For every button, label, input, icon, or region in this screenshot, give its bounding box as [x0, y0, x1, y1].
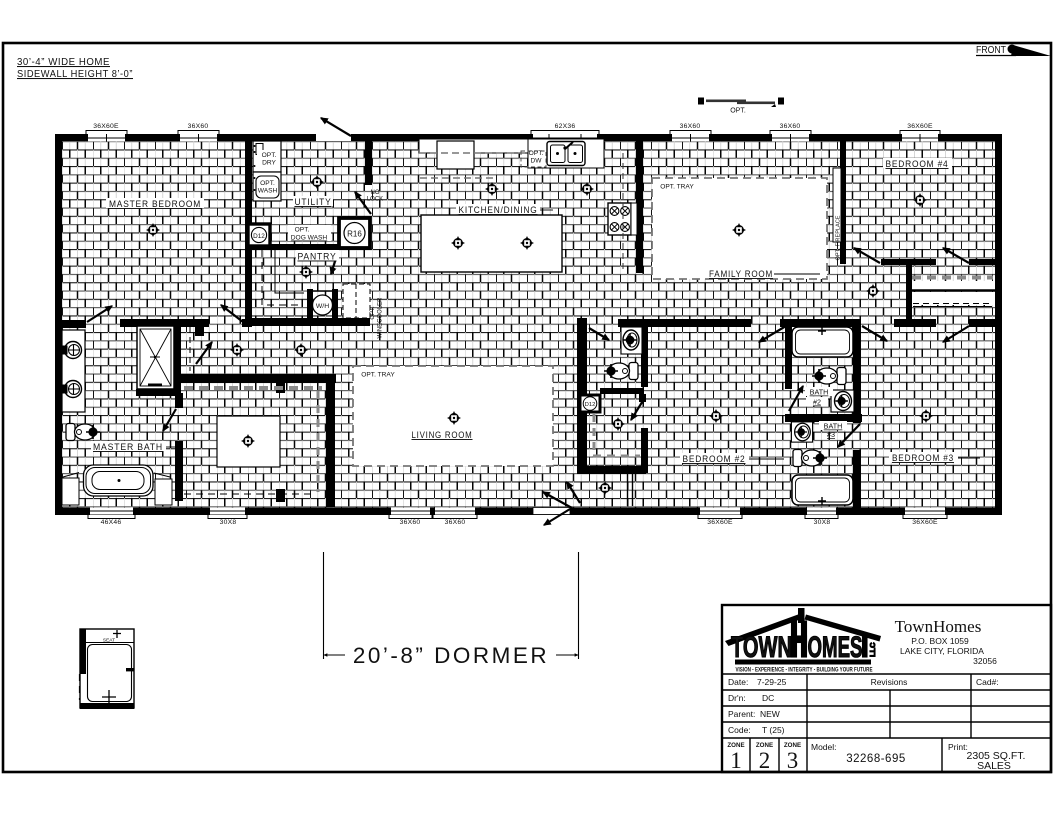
- svg-text:OPT. TRAY: OPT. TRAY: [361, 372, 395, 379]
- svg-text:SEAT: SEAT: [103, 638, 115, 644]
- svg-text:#2: #2: [813, 398, 821, 407]
- svg-text:2: 2: [759, 748, 771, 773]
- svg-text:D12: D12: [253, 233, 265, 240]
- svg-text:30X8: 30X8: [814, 519, 831, 526]
- svg-text:3: 3: [787, 748, 799, 773]
- svg-text:#3: #3: [827, 430, 835, 439]
- svg-text:1: 1: [730, 748, 742, 773]
- svg-text:R16: R16: [347, 230, 362, 239]
- svg-text:DRY: DRY: [262, 160, 276, 167]
- svg-text:D12: D12: [585, 402, 596, 408]
- svg-text:FRONT: FRONT: [976, 45, 1006, 56]
- svg-text:SALES: SALES: [977, 760, 1011, 772]
- svg-text:OPT.: OPT.: [370, 306, 376, 320]
- svg-text:OPT.: OPT.: [262, 152, 277, 159]
- svg-text:LAKE CITY, FLORIDA: LAKE CITY, FLORIDA: [900, 646, 984, 656]
- svg-text:BATH: BATH: [810, 388, 829, 397]
- svg-text:OMES: OMES: [808, 631, 863, 664]
- svg-text:62X36: 62X36: [555, 123, 576, 130]
- svg-text:MASTER BEDROOM: MASTER BEDROOM: [109, 199, 201, 210]
- svg-text:WINECOOLER: WINECOOLER: [378, 297, 384, 339]
- svg-text:W/H: W/H: [316, 303, 329, 310]
- svg-text:Code:: Code:: [728, 725, 751, 735]
- svg-text:36X60: 36X60: [680, 123, 701, 130]
- svg-text:WASH: WASH: [258, 188, 278, 195]
- svg-text:OPT. FIREPLACE: OPT. FIREPLACE: [836, 215, 842, 260]
- svg-text:36X60E: 36X60E: [707, 519, 733, 526]
- svg-text:20’-8” DORMER: 20’-8” DORMER: [353, 643, 549, 668]
- svg-text:DOG WASH: DOG WASH: [291, 235, 328, 242]
- svg-text:SIDEWALL HEIGHT 8’-0”: SIDEWALL HEIGHT 8’-0”: [17, 68, 133, 80]
- svg-text:Revisions: Revisions: [871, 677, 908, 687]
- svg-text:FAMILY ROOM: FAMILY ROOM: [709, 269, 773, 280]
- svg-text:LLC: LLC: [868, 642, 877, 657]
- svg-text:BEDROOM #4: BEDROOM #4: [886, 159, 949, 170]
- svg-text:OPT.: OPT.: [295, 227, 310, 234]
- svg-text:P.O. BOX 1059: P.O. BOX 1059: [911, 636, 969, 646]
- svg-text:7-29-25: 7-29-25: [757, 677, 787, 687]
- svg-text:MASTER BATH: MASTER BATH: [93, 442, 163, 453]
- svg-text:DC: DC: [762, 693, 774, 703]
- svg-text:NEW: NEW: [760, 709, 780, 719]
- svg-text:PANTRY: PANTRY: [298, 252, 337, 263]
- svg-text:UTILITY: UTILITY: [295, 197, 332, 208]
- svg-text:OPT.: OPT.: [730, 108, 746, 115]
- svg-text:OPT. TRAY: OPT. TRAY: [660, 184, 694, 191]
- svg-text:36X60: 36X60: [445, 519, 466, 526]
- svg-text:VISION - EXPERIENCE - INTEGRIT: VISION - EXPERIENCE - INTEGRITY - BUILDI…: [736, 667, 873, 674]
- svg-text:Model:: Model:: [811, 742, 837, 752]
- svg-text:BEDROOM #3: BEDROOM #3: [892, 453, 954, 464]
- svg-text:LIVING ROOM: LIVING ROOM: [412, 430, 473, 441]
- svg-text:Cad#:: Cad#:: [976, 677, 999, 687]
- svg-text:DW: DW: [531, 158, 543, 165]
- svg-text:Dr'n:: Dr'n:: [728, 693, 746, 703]
- svg-text:LOCK: LOCK: [367, 197, 383, 203]
- svg-text:TOWN: TOWN: [731, 631, 792, 664]
- svg-text:TownHomes: TownHomes: [895, 617, 982, 636]
- svg-text:30X8: 30X8: [220, 519, 237, 526]
- svg-text:36X60E: 36X60E: [907, 123, 933, 130]
- svg-text:36X60: 36X60: [188, 123, 209, 130]
- svg-text:36X60: 36X60: [780, 123, 801, 130]
- svg-text:Print:: Print:: [948, 742, 968, 752]
- svg-text:Parent:: Parent:: [728, 709, 755, 719]
- svg-text:KITCHEN/DINING: KITCHEN/DINING: [459, 205, 538, 216]
- svg-text:OPT.: OPT.: [260, 180, 275, 187]
- svg-text:36X60E: 36X60E: [912, 519, 938, 526]
- svg-text:36X60E: 36X60E: [93, 123, 119, 130]
- svg-text:BEDROOM #2: BEDROOM #2: [683, 454, 746, 465]
- svg-text:OPT.: OPT.: [529, 150, 544, 157]
- svg-text:32056: 32056: [973, 656, 997, 666]
- svg-text:32268-695: 32268-695: [846, 753, 906, 765]
- svg-text:46X46: 46X46: [101, 519, 122, 526]
- svg-text:30’-4” WIDE HOME: 30’-4” WIDE HOME: [17, 56, 110, 68]
- svg-text:T (25): T (25): [762, 725, 785, 735]
- svg-text:NO: NO: [371, 190, 380, 196]
- svg-text:Date:: Date:: [728, 677, 748, 687]
- svg-text:36X60: 36X60: [400, 519, 421, 526]
